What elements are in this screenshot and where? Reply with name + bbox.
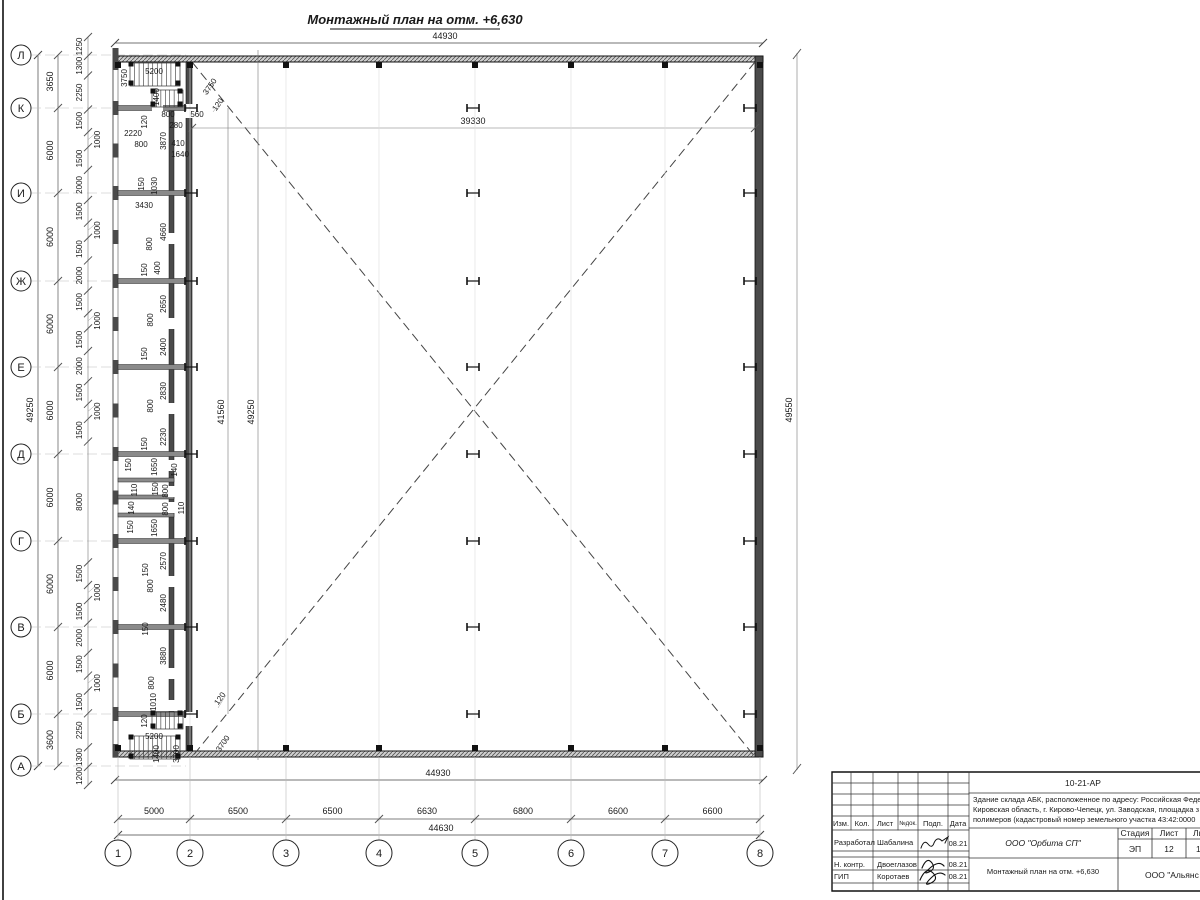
annotation-dim: 800 bbox=[161, 502, 170, 516]
annotation-dim: 800 bbox=[146, 399, 155, 413]
dim-left-detail: 1500 bbox=[75, 111, 84, 129]
dim-left-detail: 1500 bbox=[75, 202, 84, 220]
wall-axis2 bbox=[186, 62, 192, 751]
stair-column-mark bbox=[178, 724, 183, 729]
annotation-dim: 150 bbox=[140, 437, 149, 451]
annotation-dim: 2650 bbox=[159, 295, 168, 313]
row-axis-label-Г: Г bbox=[18, 536, 24, 548]
annotation-dim: 800 bbox=[146, 313, 155, 327]
wall-column-bottom bbox=[376, 745, 382, 751]
stage-label: Стадия bbox=[1121, 828, 1150, 838]
wall-column-top bbox=[115, 62, 121, 68]
steel-column-right bbox=[744, 277, 756, 285]
sheets-label: Листов bbox=[1193, 828, 1200, 838]
partition-wall bbox=[118, 625, 186, 630]
wall-column-top bbox=[283, 62, 289, 68]
wall-right bbox=[755, 56, 763, 757]
wall-pier bbox=[113, 101, 119, 115]
dimension-layer: 3650600060006000600060006000600036001250… bbox=[45, 33, 764, 823]
wall-column-top bbox=[187, 62, 193, 68]
annotation-dim: 5200 bbox=[145, 67, 163, 76]
dim-left-bay: 6000 bbox=[45, 487, 55, 507]
annotation-dim: 2480 bbox=[159, 594, 168, 612]
annotation-dim: 3880 bbox=[159, 647, 168, 665]
wall-pier bbox=[113, 577, 119, 591]
wall-column-bottom bbox=[662, 745, 668, 751]
annotation-dim: 280 bbox=[169, 121, 183, 130]
contractor-org: ООО "Альянс bbox=[1145, 870, 1200, 880]
dim-left-detail: 1250 bbox=[75, 37, 84, 55]
row-axis-label-Б: Б bbox=[17, 709, 24, 721]
sheet-subject: Монтажный план на отм. +6,630 bbox=[987, 867, 1099, 876]
col-axis-label-4: 4 bbox=[376, 848, 382, 860]
wall-top bbox=[113, 56, 763, 62]
annotation-dim: 3870 bbox=[159, 132, 168, 150]
dim-left-detail: 1200 bbox=[75, 766, 84, 784]
annotation-dim: 150 bbox=[126, 520, 135, 534]
wall-pier bbox=[113, 664, 119, 678]
dim-left-detail: 1000 bbox=[93, 402, 102, 420]
dim-bottom-building: 44930 bbox=[425, 768, 450, 778]
dim-left-total: 49250 bbox=[25, 397, 35, 422]
wall-pier bbox=[113, 491, 119, 505]
dim-left-detail: 2000 bbox=[75, 175, 84, 193]
row-axis-label-Д: Д bbox=[17, 449, 25, 461]
annotation-dim: 2570 bbox=[159, 552, 168, 570]
col-axis-label-8: 8 bbox=[757, 848, 763, 860]
annotation-dim: 400 bbox=[153, 261, 162, 275]
annotation-dim: 1400 bbox=[152, 745, 161, 763]
dim-left-detail: 1500 bbox=[75, 693, 84, 711]
dim-bottom-bay: 6600 bbox=[702, 806, 722, 816]
annotation-dim: 150 bbox=[140, 263, 149, 277]
row2-role: Н. контр. bbox=[834, 860, 865, 869]
dim-left-bay: 3600 bbox=[45, 730, 55, 750]
title-block: 10-21-АР Здание склада АБК, расположенно… bbox=[832, 772, 1200, 891]
wall-pier bbox=[113, 620, 119, 634]
steel-column-right bbox=[744, 537, 756, 545]
wall-pier bbox=[113, 404, 119, 418]
dim-left-detail: 1500 bbox=[75, 292, 84, 310]
sheet-label: Лист bbox=[1160, 828, 1179, 838]
dim-bottom-bay: 6600 bbox=[608, 806, 628, 816]
door-gap bbox=[168, 576, 175, 587]
door-gap bbox=[168, 403, 175, 414]
wall-column-bottom bbox=[187, 745, 193, 751]
dim-left-bay: 6000 bbox=[45, 400, 55, 420]
annotation-dim: 2830 bbox=[159, 382, 168, 400]
annotation-dim: 800 bbox=[161, 484, 170, 498]
annotation-dim: 800 bbox=[146, 579, 155, 593]
dim-left-bay: 6000 bbox=[45, 140, 55, 160]
sheet-number: 12 bbox=[1164, 844, 1174, 854]
col-izm: Изм. bbox=[833, 819, 849, 828]
stair-column-mark bbox=[178, 89, 183, 94]
stair-column-mark bbox=[178, 711, 183, 716]
dim-bottom-bay: 6800 bbox=[513, 806, 533, 816]
wall-column-bottom bbox=[568, 745, 574, 751]
wall-pier bbox=[113, 230, 119, 244]
dim-left-bay: 6000 bbox=[45, 314, 55, 334]
row1-date: 08.21 bbox=[949, 839, 968, 848]
wall-column-top bbox=[662, 62, 668, 68]
annotation-dim: 560 bbox=[190, 110, 204, 119]
wall-pier bbox=[113, 360, 119, 374]
wall-column-top bbox=[568, 62, 574, 68]
stair-column-mark bbox=[176, 62, 181, 67]
wall-column-top bbox=[472, 62, 478, 68]
annotation-dim: 110 bbox=[130, 483, 139, 496]
annotation-dim: 3430 bbox=[135, 201, 153, 210]
stair-column-mark bbox=[176, 735, 181, 740]
dim-left-detail: 1500 bbox=[75, 421, 84, 439]
col-list: Лист bbox=[877, 819, 894, 828]
dim-left-bay: 6000 bbox=[45, 227, 55, 247]
stair-column-mark bbox=[129, 735, 134, 740]
wall-pier bbox=[113, 317, 119, 331]
dim-left-detail: 1500 bbox=[75, 240, 84, 258]
annotation-dim: 150 bbox=[140, 347, 149, 361]
annotation-dim: 120 bbox=[140, 115, 149, 129]
steel-column-center bbox=[467, 710, 479, 718]
annotation-dim: 1650 bbox=[150, 519, 159, 537]
dim-hall-h1: 41560 bbox=[216, 399, 226, 424]
col-axis-label-5: 5 bbox=[472, 848, 478, 860]
annotation-dim: 150 bbox=[141, 622, 150, 636]
partition-wall bbox=[118, 539, 186, 544]
col-axis-label-7: 7 bbox=[662, 848, 668, 860]
dim-bottom-bay: 6500 bbox=[322, 806, 342, 816]
dim-left-detail: 1500 bbox=[75, 602, 84, 620]
row-axis-label-Л: Л bbox=[17, 50, 24, 62]
signature-rows23 bbox=[920, 860, 945, 884]
annotation-dim: 110 bbox=[177, 501, 186, 514]
annotation-dim: 150 bbox=[141, 563, 150, 577]
wall-column-top bbox=[376, 62, 382, 68]
wall-pier bbox=[113, 707, 119, 721]
col-podp: Подп. bbox=[923, 819, 943, 828]
row-axis-label-И: И bbox=[17, 188, 25, 200]
annotation-dim: 1640 bbox=[171, 150, 189, 159]
dim-left-detail: 1500 bbox=[75, 330, 84, 348]
stair-column-mark bbox=[176, 81, 181, 86]
wall-pier bbox=[113, 447, 119, 461]
annotation-dim: 3750 bbox=[120, 69, 129, 87]
annotation-dim: 2400 bbox=[159, 338, 168, 356]
annotation-dim: 800 bbox=[134, 140, 148, 149]
door-gap bbox=[168, 318, 175, 329]
annotation-dim: 2230 bbox=[159, 428, 168, 446]
annotation-dim: 1010 bbox=[149, 693, 158, 711]
plan-title: Монтажный план на отм. +6,630 bbox=[307, 12, 523, 27]
row3-name: Коротаев bbox=[877, 872, 909, 881]
dim-left-detail: 1000 bbox=[93, 130, 102, 148]
dim-left-detail: 1000 bbox=[93, 674, 102, 692]
steel-column-center bbox=[467, 537, 479, 545]
steel-column-center bbox=[467, 363, 479, 371]
dim-bottom-bay: 6500 bbox=[228, 806, 248, 816]
dim-hall-h2: 49250 bbox=[246, 399, 256, 424]
signature-row1 bbox=[921, 837, 948, 848]
row-axis-label-Е: Е bbox=[17, 362, 24, 374]
partition-wall bbox=[118, 452, 186, 457]
row3-date: 08.21 bbox=[949, 872, 968, 881]
annotation-dim: 1030 bbox=[150, 177, 159, 195]
wall-pier bbox=[113, 144, 119, 158]
stair-column-mark bbox=[129, 754, 134, 759]
annotation-dim: 150 bbox=[137, 177, 146, 191]
annotation-dim: 150 bbox=[151, 482, 160, 496]
annotation-dim: 410 bbox=[171, 139, 185, 148]
row2-date: 08.21 bbox=[949, 860, 968, 869]
annotation-dim: 1400 bbox=[152, 88, 161, 106]
drawing-sheet: Монтажный план на отм. +6,630 44930 4156… bbox=[0, 0, 1200, 900]
row1-role: Разработал bbox=[834, 838, 875, 847]
wall-column-bottom bbox=[757, 745, 763, 751]
dim-left-detail: 2000 bbox=[75, 628, 84, 646]
col-axis-label-2: 2 bbox=[187, 848, 193, 860]
design-org: ООО "Орбита СП" bbox=[1005, 838, 1081, 848]
row1-name: Шабалина bbox=[877, 838, 914, 847]
annotation-dim: 140 bbox=[170, 463, 179, 477]
steel-column-center bbox=[467, 277, 479, 285]
partition-wall-wc bbox=[118, 478, 174, 482]
steel-column-center bbox=[467, 189, 479, 197]
wall-column-top bbox=[757, 62, 763, 68]
dim-left-detail: 1500 bbox=[75, 564, 84, 582]
sheets-number: 1 bbox=[1196, 844, 1200, 854]
dim-left-detail: 2000 bbox=[75, 357, 84, 375]
wall-pier bbox=[113, 186, 119, 200]
dim-left-detail: 1300 bbox=[75, 56, 84, 74]
steel-column-center bbox=[467, 104, 479, 112]
dim-bottom-total: 44630 bbox=[428, 823, 453, 833]
row-axis-label-К: К bbox=[18, 103, 25, 115]
annotation-dim: 800 bbox=[145, 237, 154, 251]
stair-column-mark bbox=[129, 62, 134, 67]
dim-left-detail: 1000 bbox=[93, 311, 102, 329]
project-desc-1: Здание склада АБК, расположенное по адре… bbox=[973, 795, 1200, 804]
annotation-dim: 140 bbox=[127, 501, 136, 515]
stair-column-mark bbox=[129, 81, 134, 86]
steel-column-right bbox=[744, 189, 756, 197]
wall-pier bbox=[113, 534, 119, 548]
col-data: Дата bbox=[950, 819, 967, 828]
dim-right-total: 49550 bbox=[784, 397, 794, 422]
col-kol: Кол. bbox=[855, 819, 870, 828]
annotation-dim: 2220 bbox=[124, 129, 142, 138]
row-axis-label-А: А bbox=[17, 761, 25, 773]
row2-name: Двоеглазов bbox=[877, 860, 917, 869]
annotation-dim: 3750 bbox=[201, 76, 219, 96]
project-desc-3: полимеров (кадастровый номер земельного … bbox=[973, 815, 1195, 824]
annotation-dim: 120 bbox=[210, 96, 225, 113]
floor-plan-canvas: Монтажный план на отм. +6,630 44930 4156… bbox=[0, 0, 1200, 900]
dim-left-bay: 3650 bbox=[45, 71, 55, 91]
doc-code: 10-21-АР bbox=[1065, 778, 1101, 788]
col-axis-label-1: 1 bbox=[115, 848, 121, 860]
dim-left-detail: 1300 bbox=[75, 748, 84, 766]
row-axis-label-Ж: Ж bbox=[16, 276, 26, 288]
annotation-dim: 3700 bbox=[214, 733, 232, 753]
annotation-dim: 4660 bbox=[159, 223, 168, 241]
dim-bottom-bay: 6630 bbox=[417, 806, 437, 816]
dim-hall-width: 39330 bbox=[460, 116, 485, 126]
annotation-dim: 120 bbox=[140, 714, 149, 728]
dim-bottom-bay: 5000 bbox=[144, 806, 164, 816]
col-ndok: №док. bbox=[899, 820, 917, 827]
annotation-dim: 800 bbox=[161, 110, 175, 119]
col-axis-label-6: 6 bbox=[568, 848, 574, 860]
project-desc-2: Кировская область, г. Кирово-Чепецк, ул.… bbox=[973, 805, 1200, 814]
annotation-dim: 150 bbox=[124, 458, 133, 472]
wall-column-bottom bbox=[115, 745, 121, 751]
steel-column-right bbox=[744, 623, 756, 631]
dim-left-detail: 1500 bbox=[75, 383, 84, 401]
dim-left-detail: 1000 bbox=[93, 221, 102, 239]
dim-left-detail: 1500 bbox=[75, 149, 84, 167]
wall-column-bottom bbox=[283, 745, 289, 751]
door-gap bbox=[168, 700, 175, 711]
dim-left-bay: 6000 bbox=[45, 574, 55, 594]
wall-bottom bbox=[113, 751, 763, 757]
steel-column-right bbox=[744, 363, 756, 371]
dim-left-detail: 2250 bbox=[75, 83, 84, 101]
col-axis-label-3: 3 bbox=[283, 848, 289, 860]
partition-wall bbox=[118, 279, 186, 284]
steel-column-right bbox=[744, 450, 756, 458]
row-axis-label-В: В bbox=[17, 622, 24, 634]
steel-column-center bbox=[467, 623, 479, 631]
dim-left-bay: 6000 bbox=[45, 660, 55, 680]
stage-value: ЭП bbox=[1129, 844, 1141, 854]
steel-column-right bbox=[744, 710, 756, 718]
dim-left-detail: 1500 bbox=[75, 655, 84, 673]
stair-column-mark bbox=[178, 102, 183, 107]
partition-wall bbox=[118, 365, 186, 370]
steel-column-center bbox=[467, 450, 479, 458]
door-gap bbox=[168, 668, 175, 679]
steel-column-right bbox=[744, 104, 756, 112]
dim-left-detail: 1000 bbox=[93, 583, 102, 601]
dim-left-detail: 2000 bbox=[75, 266, 84, 284]
row3-role: ГИП bbox=[834, 872, 849, 881]
annotation-dim: 5200 bbox=[145, 732, 163, 741]
door-gap bbox=[168, 233, 175, 244]
columns-layer bbox=[115, 62, 763, 751]
wall-column-bottom bbox=[472, 745, 478, 751]
annotation-dim: 3700 bbox=[172, 745, 181, 763]
stair-column-mark bbox=[151, 724, 156, 729]
wall-pier bbox=[113, 274, 119, 288]
dim-left-detail: 2250 bbox=[75, 721, 84, 739]
dim-left-detail: 8000 bbox=[75, 493, 84, 511]
annotation-dim: 800 bbox=[147, 676, 156, 690]
annotation-dim: 1650 bbox=[150, 458, 159, 476]
dim-top-total: 44930 bbox=[432, 31, 457, 41]
